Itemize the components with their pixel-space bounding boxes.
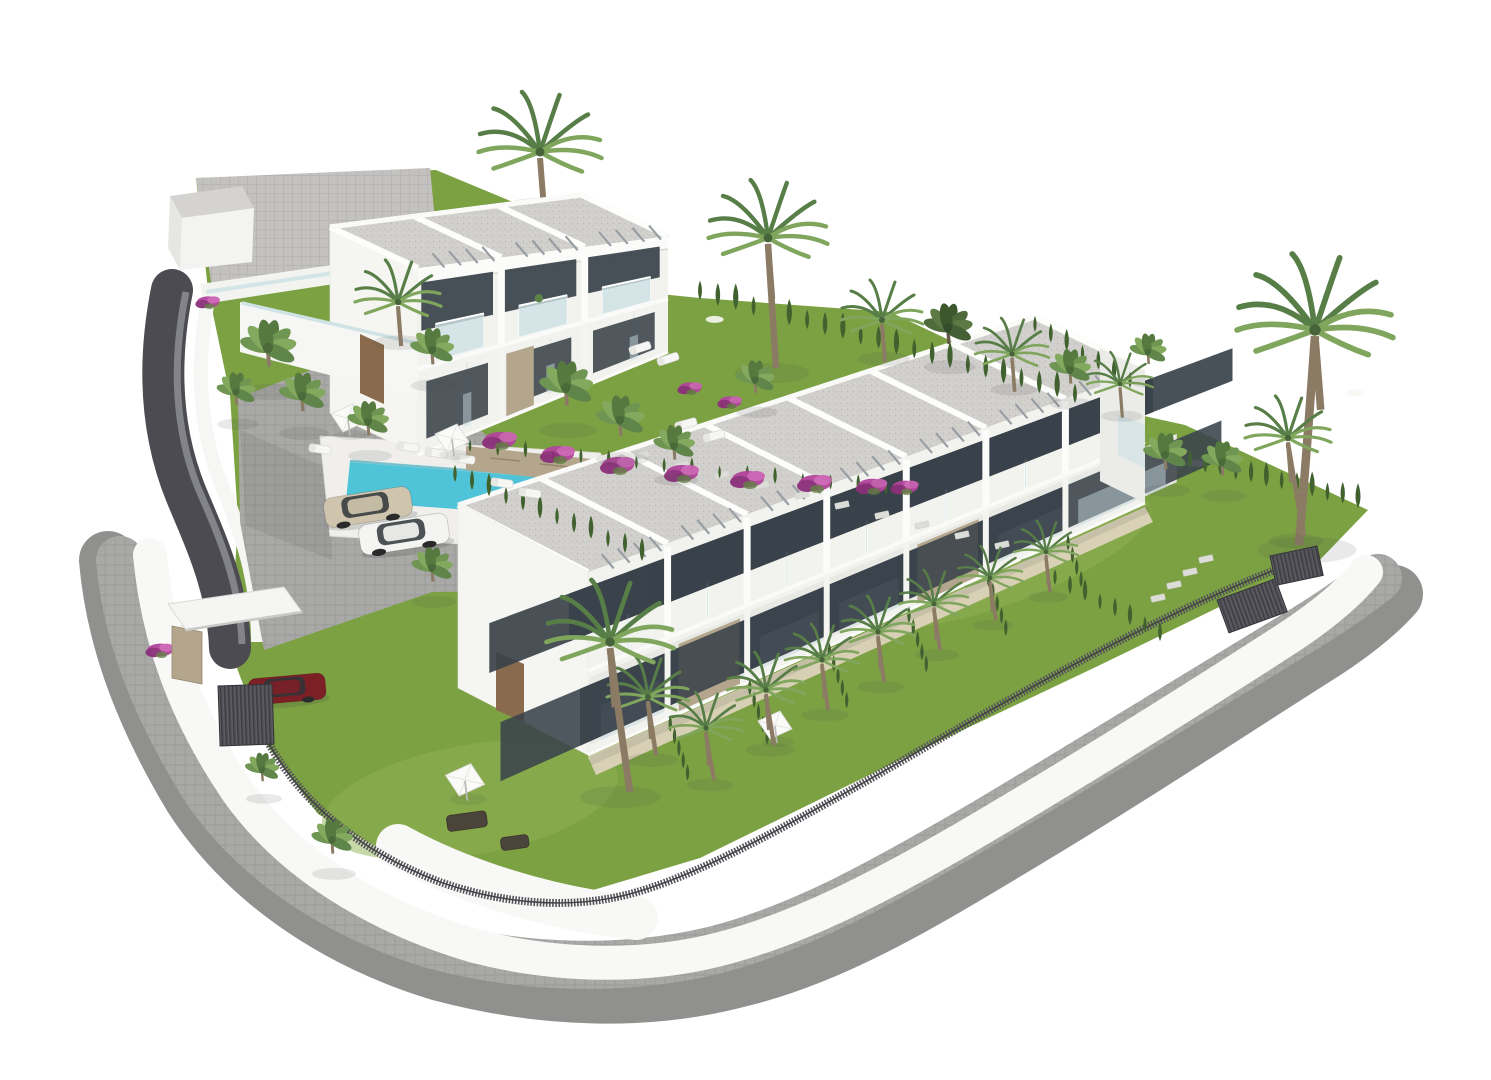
hut-front-wall	[180, 208, 254, 270]
carport-stone-pillar	[172, 626, 202, 684]
tree-shadow	[736, 407, 778, 418]
tree-shadow	[596, 452, 648, 466]
tree-shadow	[539, 423, 596, 438]
tree-shadow	[312, 868, 356, 880]
tree-shadow	[626, 753, 678, 767]
site-render	[0, 0, 1491, 1080]
tree-shadow	[915, 649, 959, 661]
tree-shadow	[217, 419, 259, 430]
balcony-potted-tree	[535, 294, 543, 302]
tree-shadow	[1028, 592, 1069, 603]
tree-shadow	[580, 786, 661, 808]
tree-shadow	[1131, 377, 1170, 388]
tree-shadow	[1269, 534, 1324, 549]
tree-shadow	[1144, 484, 1191, 497]
tree-shadow	[924, 360, 976, 374]
slatted-gate	[218, 684, 274, 746]
tree-shadow	[745, 743, 794, 756]
stone-clad-pier	[506, 346, 534, 417]
terrace-glass	[463, 392, 471, 428]
tree-shadow	[654, 474, 698, 486]
tree-shadow	[412, 596, 456, 608]
tree-shadow	[972, 619, 1014, 630]
balcony-glass-railing	[786, 552, 788, 586]
tree-shadow	[858, 681, 905, 694]
tree-shadow	[279, 427, 328, 440]
balcony-glass-railing	[866, 521, 868, 553]
balcony-glass-railing	[945, 490, 947, 521]
tree-shadow	[1202, 490, 1246, 502]
tree-shadow	[348, 450, 392, 462]
tree-shadow	[246, 794, 282, 804]
tree-shadow	[411, 379, 458, 392]
balcony-glass-railing	[707, 584, 709, 619]
terrace-furniture	[1346, 390, 1364, 397]
balcony-glass-railing	[1025, 459, 1027, 488]
terrace-furniture	[706, 316, 724, 323]
tree-shadow	[1050, 398, 1094, 410]
render-canvas	[0, 0, 1491, 1080]
tree-shadow	[687, 779, 734, 792]
tree-shadow	[802, 709, 849, 722]
